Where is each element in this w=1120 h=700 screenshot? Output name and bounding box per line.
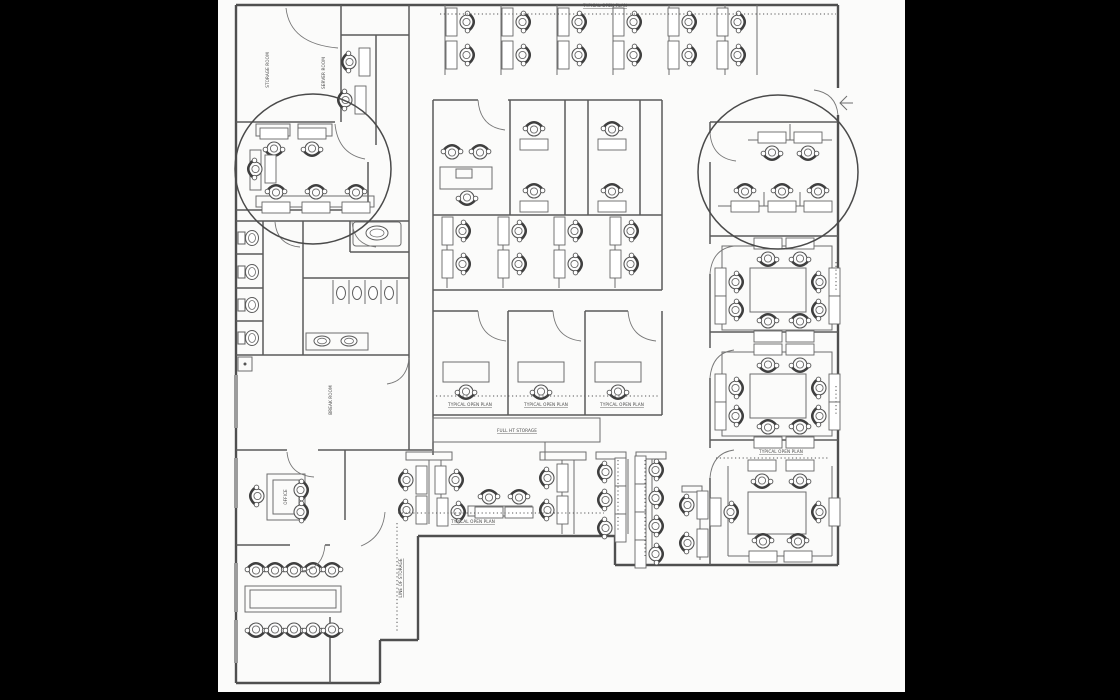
door-swing-arc — [286, 8, 338, 48]
door-swing-arc — [710, 450, 734, 478]
door-swing-arc — [275, 222, 300, 247]
floor-plan-svg: STORAGE ROOMSERVER ROOMTYPICAL OPEN PLAN… — [218, 0, 905, 692]
workstation-chair-icon — [754, 314, 782, 342]
workstation-chair-icon — [812, 296, 840, 324]
toilet-icon — [238, 332, 245, 344]
toilet-stall-icon — [385, 287, 394, 300]
workstation-chair-icon — [748, 460, 776, 488]
toilet-stall-icon — [353, 287, 362, 300]
copier — [456, 169, 472, 178]
workstation-chair-icon — [715, 268, 743, 296]
workstation-chair-icon — [598, 122, 626, 150]
workstation-chair-icon — [498, 250, 526, 278]
chair-icon — [283, 623, 305, 637]
workstation-chair-icon — [635, 512, 663, 540]
chair-icon — [250, 485, 264, 507]
workstation-chair-icon — [260, 128, 288, 156]
workstation-chair-icon — [715, 402, 743, 430]
workstation-chair-icon — [715, 296, 743, 324]
workstation-chair-icon — [342, 48, 370, 76]
workstation-chair-icon — [598, 486, 626, 514]
door-swing-arc — [478, 311, 506, 341]
workstation-chair-icon — [784, 534, 812, 562]
workstation-chair-icon — [248, 155, 276, 183]
workstation-chair-icon — [558, 41, 586, 69]
workstation-chair-icon — [558, 8, 586, 36]
workstation-chair-icon — [786, 314, 814, 342]
partition-cap — [406, 452, 452, 460]
toilet-icon — [246, 265, 259, 280]
chair-icon — [245, 563, 267, 577]
workstation-chair-icon — [710, 498, 738, 526]
workstation-chair-icon — [613, 41, 641, 69]
workstation-chair-icon — [520, 184, 548, 212]
workstation-chair-icon — [540, 496, 568, 524]
workstation-chair-icon — [717, 41, 745, 69]
workstation-chair-icon — [635, 456, 663, 484]
toilet-icon — [246, 298, 259, 313]
chair-icon — [245, 623, 267, 637]
door-swing-arc — [287, 452, 314, 477]
pod-core — [750, 374, 806, 418]
partition-cap — [540, 452, 586, 460]
annotation-circles — [235, 94, 858, 249]
toilet-stall-icon — [337, 287, 346, 300]
workstation-chair-icon — [598, 514, 626, 542]
workstation-chair-icon — [262, 185, 290, 213]
workstation-chair-icon — [554, 217, 582, 245]
room-label: TYPICAL OPEN PLAN — [447, 402, 492, 407]
workstation-chair-icon — [794, 132, 822, 160]
workstation-chair-icon — [804, 184, 832, 212]
chair-icon — [455, 385, 477, 399]
workstation-chair-icon — [731, 184, 759, 212]
workstation-chair-icon — [786, 420, 814, 448]
door-swing-arc — [628, 311, 656, 341]
workstation-chair-icon — [446, 8, 474, 36]
highlight-circle — [698, 95, 858, 249]
chair-icon — [294, 479, 308, 501]
workstation-chair-icon — [610, 250, 638, 278]
door-swing-arc — [335, 124, 365, 159]
workstation-chair-icon — [812, 498, 840, 526]
workstation-chair-icon — [680, 491, 708, 519]
room-label: BREAK ROOM — [328, 385, 333, 415]
plumbing-fixtures — [238, 226, 394, 366]
workstation-chair-icon — [502, 8, 530, 36]
sink-icon — [366, 226, 388, 240]
chair-icon — [607, 385, 629, 399]
workstation-chair-icon — [540, 464, 568, 492]
chair-icon — [302, 623, 324, 637]
workstation-chair-icon — [435, 466, 463, 494]
toilet-icon — [246, 331, 259, 346]
workstation-chair-icon — [498, 217, 526, 245]
chair-icon — [264, 563, 286, 577]
pod-core — [748, 492, 806, 534]
workstation-chair-icon — [342, 185, 370, 213]
workstation-chair-icon — [399, 496, 427, 524]
toilet-icon — [246, 231, 259, 246]
workstation-chair-icon — [520, 122, 548, 150]
workstation-chair-icon — [768, 184, 796, 212]
door-swing-arc — [361, 512, 385, 546]
pod-core — [750, 268, 806, 312]
door-swing-arc — [478, 100, 505, 130]
sink-icon — [341, 336, 357, 346]
room-label: TYPICAL OPEN PLAN — [758, 449, 803, 454]
workstation-chair-icon — [613, 8, 641, 36]
room-label: SERVER ROOM — [321, 57, 326, 89]
workstation-chair-icon — [749, 534, 777, 562]
room-label: TYPICAL OPEN PLAN — [523, 402, 568, 407]
chair-icon — [283, 563, 305, 577]
sink-icon — [314, 336, 330, 346]
room-label: TYPICAL OPEN PLAN — [582, 3, 627, 8]
room-label: STORAGE ROOM — [265, 52, 270, 88]
workstation-chair-icon — [754, 420, 782, 448]
desk — [518, 362, 564, 382]
chair-icon — [321, 563, 343, 577]
toilet-icon — [238, 266, 245, 278]
workstation-chair-icon — [786, 344, 814, 372]
workstation-chair-icon — [298, 128, 326, 156]
workstation-chair-icon — [505, 490, 533, 518]
workstation-chair-icon — [598, 184, 626, 212]
chair-icon — [264, 623, 286, 637]
workstation-chair-icon — [668, 8, 696, 36]
conference-table-inner — [250, 590, 336, 608]
toilet-stall-icon — [369, 287, 378, 300]
room-label: TYPICAL OPEN PLAN — [450, 519, 495, 524]
workstations — [245, 8, 840, 637]
workstation-chair-icon — [399, 466, 427, 494]
workstation-chair-icon — [786, 460, 814, 488]
workstation-chair-icon — [502, 41, 530, 69]
column-marker — [244, 363, 247, 366]
workstation-chair-icon — [754, 238, 782, 266]
door-swing-arc — [387, 358, 409, 384]
workstation-chair-icon — [475, 490, 503, 518]
door-swing-arc — [553, 311, 581, 341]
workstation-chair-icon — [758, 132, 786, 160]
room-label: TYPICAL OPEN PLAN — [599, 402, 644, 407]
workstation-chair-icon — [554, 250, 582, 278]
workstation-chair-icon — [715, 374, 743, 402]
room-label: FULL HT STORAGE — [497, 428, 537, 433]
workstation-chair-icon — [680, 529, 708, 557]
workstation-chair-icon — [446, 41, 474, 69]
room-label: LINE OF STORAGE — [398, 558, 403, 597]
chair-icon — [441, 145, 463, 159]
chair-icon — [530, 385, 552, 399]
workstation-chair-icon — [442, 217, 470, 245]
viewer-background: { "scene": { "background": "#000000", "p… — [0, 0, 1120, 700]
workstation-chair-icon — [668, 41, 696, 69]
desk — [443, 362, 489, 382]
floorplan-page: STORAGE ROOMSERVER ROOMTYPICAL OPEN PLAN… — [218, 0, 905, 692]
workstation-chair-icon — [598, 458, 626, 486]
desk — [595, 362, 641, 382]
workstation-chair-icon — [302, 185, 330, 213]
workstation-chair-icon — [610, 217, 638, 245]
workstation-chair-icon — [717, 8, 745, 36]
chair-icon — [321, 623, 343, 637]
door-swing-arc — [710, 133, 736, 161]
chair-icon — [469, 145, 491, 159]
toilet-icon — [238, 232, 245, 244]
workstation-chair-icon — [754, 344, 782, 372]
workstation-chair-icon — [635, 484, 663, 512]
toilet-icon — [238, 299, 245, 311]
workstation-chair-icon — [442, 250, 470, 278]
chair-icon — [456, 191, 478, 205]
room-label: OFFICE — [283, 489, 288, 505]
chair-icon — [302, 563, 324, 577]
